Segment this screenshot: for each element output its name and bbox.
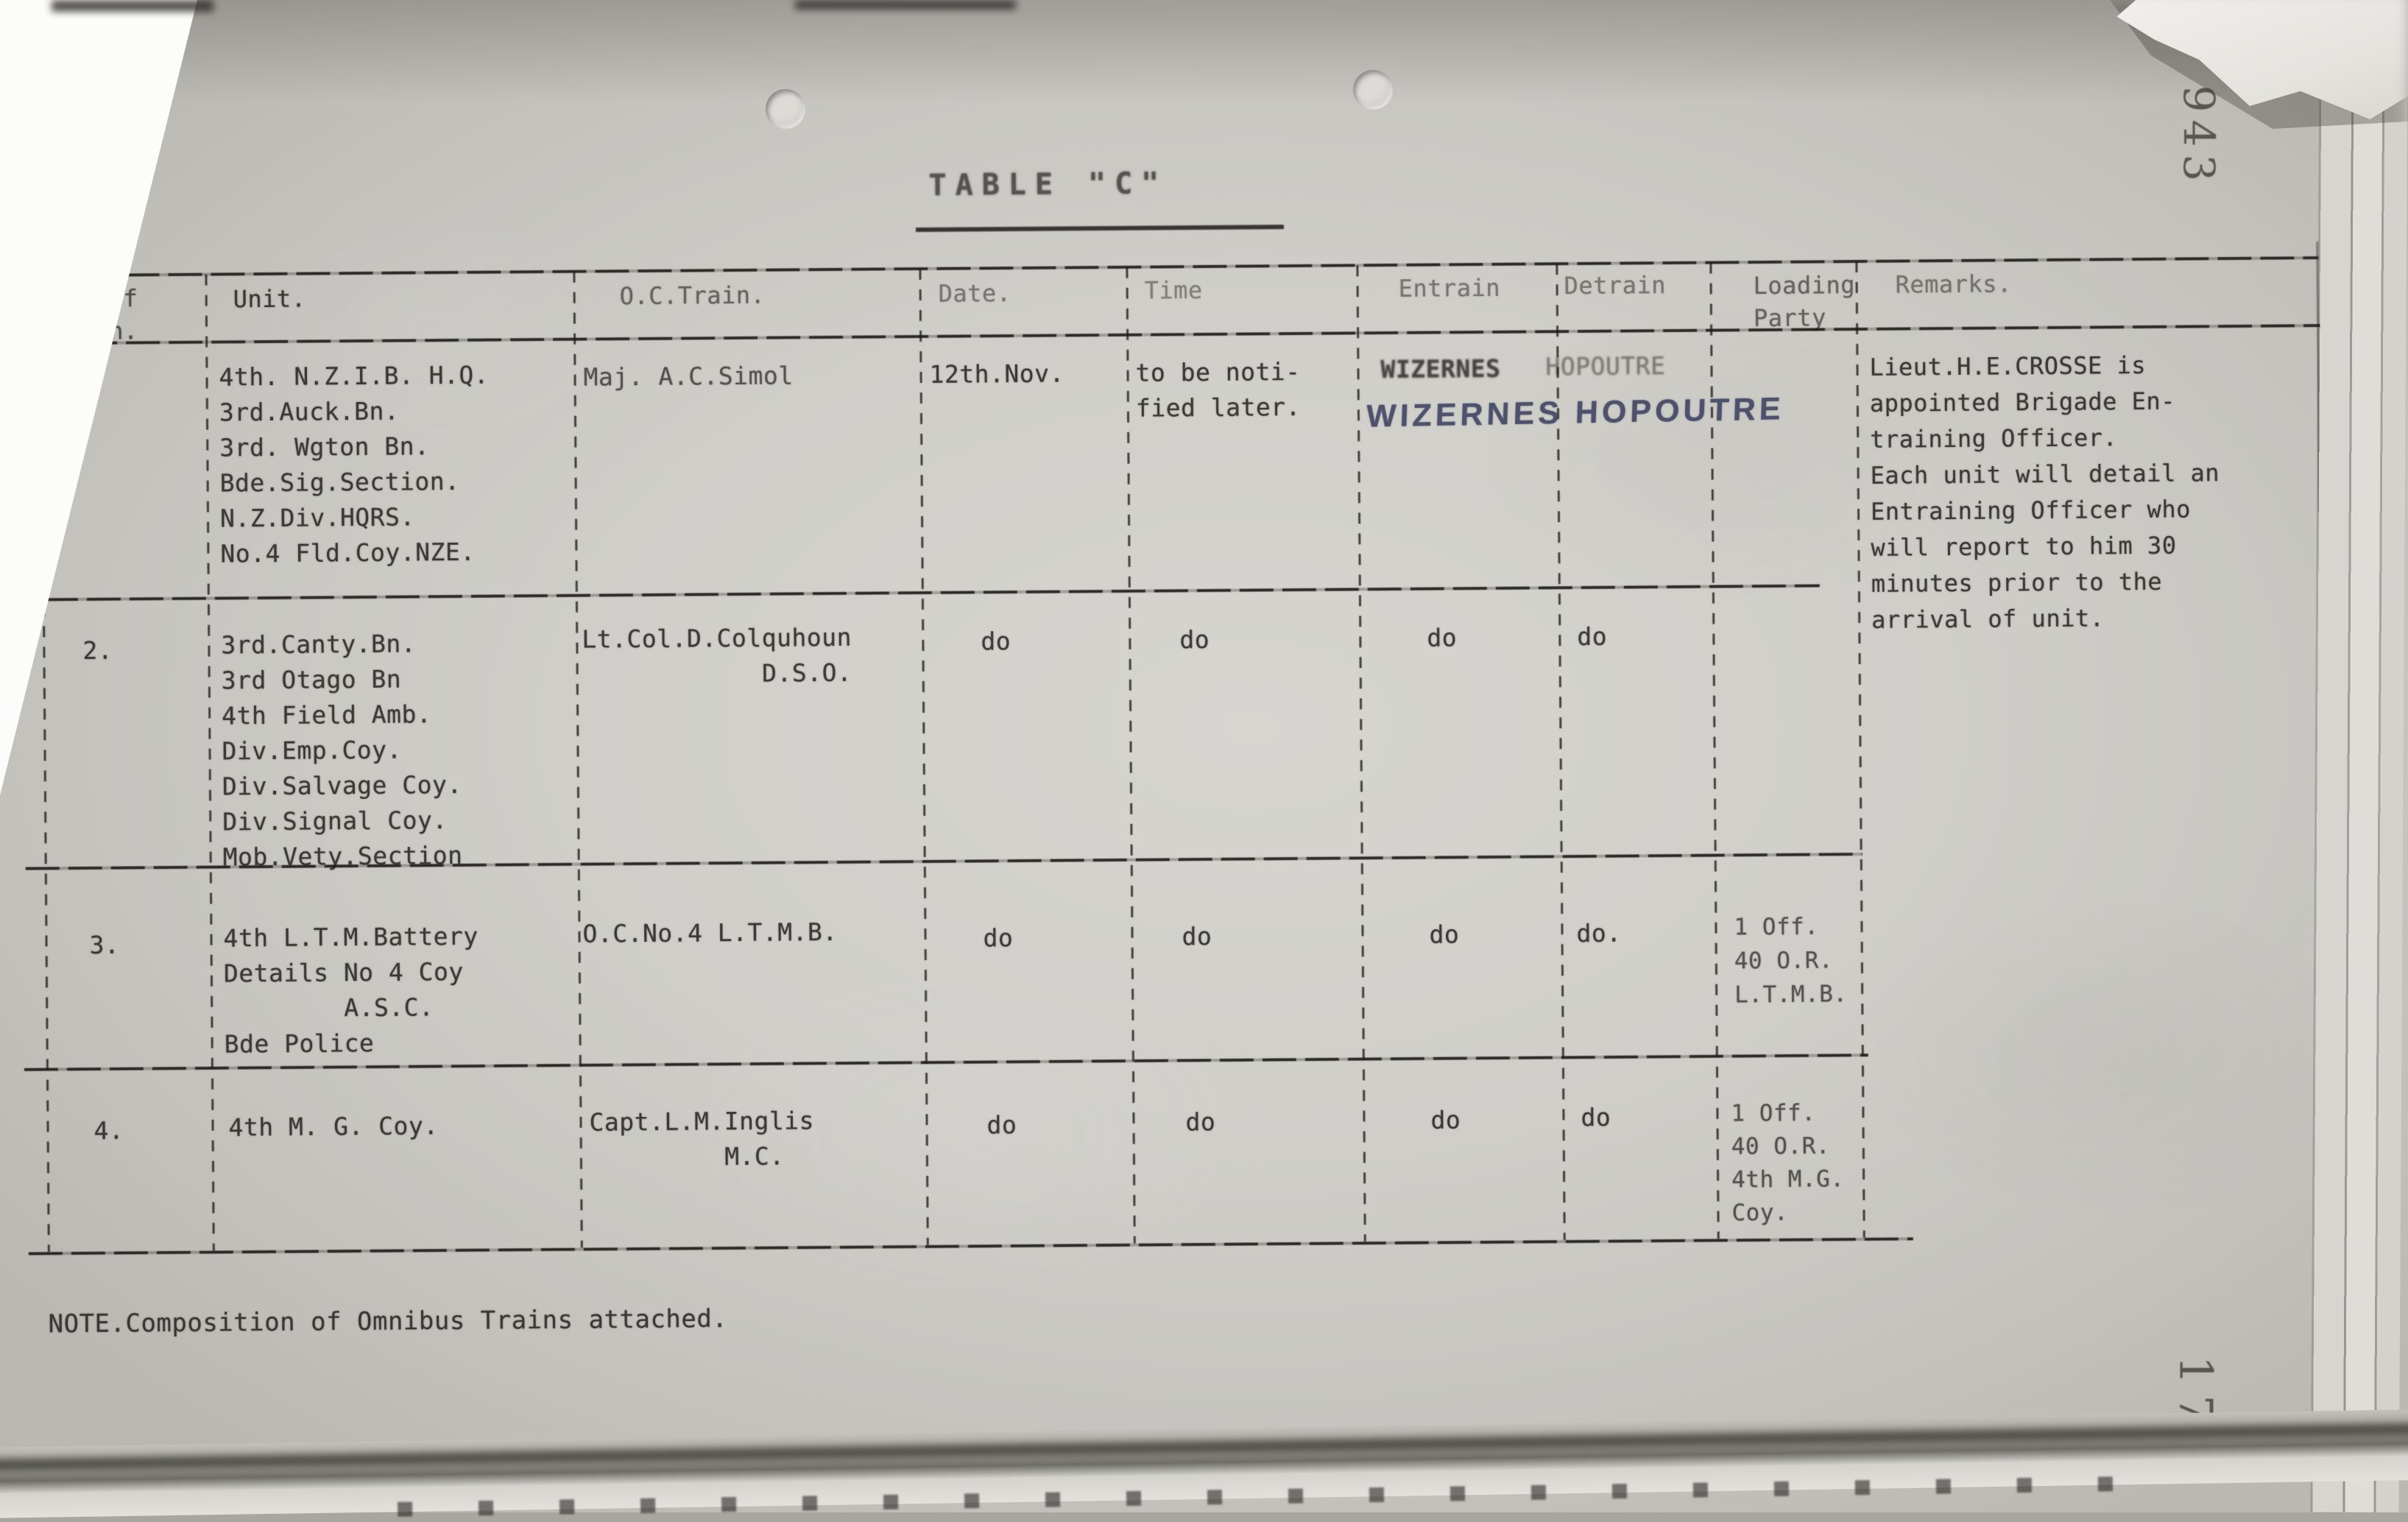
row4-entrain: do — [1430, 1102, 1461, 1138]
top-edge-shadow — [52, 0, 213, 12]
row1-bottom-rule — [44, 584, 1820, 601]
col-header-entrain: Entrain — [1398, 272, 1500, 305]
col-header-detrain: Detrain — [1564, 269, 1666, 302]
row1-handwritten-stations: WIZERNES HOPOUTRE — [1366, 390, 1853, 435]
row3-date: do — [983, 920, 1013, 956]
col-rule-unit-oc — [573, 272, 582, 1248]
row3-oc-train: O.C.No.4 L.T.M.B. — [582, 915, 838, 952]
row1-entrain-typed: WIZERNES — [1380, 351, 1500, 387]
row4-detrain: do — [1581, 1100, 1611, 1135]
row1-detrain-typed: HOPOUTRE — [1545, 348, 1665, 384]
row4-time: do — [1185, 1104, 1215, 1140]
row3-detrain: do. — [1576, 916, 1621, 951]
col-header-oc: O.C.Train. — [620, 279, 766, 313]
row3-entrain: do — [1429, 917, 1459, 952]
row2-time: do — [1179, 622, 1210, 658]
row4-date: do — [986, 1107, 1017, 1143]
col-header-date: Date. — [938, 277, 1011, 310]
row2-date: do — [981, 624, 1011, 659]
page-title: TABLE "C" — [915, 161, 1284, 232]
row2-unit-cell: 3rd.Canty.Bn. 3rd Otago Bn 4th Field Amb… — [221, 625, 569, 875]
row4-unit-cell: 4th M. G. Coy. — [228, 1108, 439, 1145]
page-title-text: TABLE "C" — [928, 166, 1168, 202]
typed-page-content: TABLE "C" No. of Train. Unit. O.C.Train.… — [0, 0, 2408, 1522]
row1-time: to be noti- fied later. — [1135, 353, 1357, 426]
row1-unit-cell: 4th. N.Z.I.B. H.Q. 3rd.Auck.Bn. 3rd. Wgt… — [219, 357, 566, 572]
punch-hole-right — [1353, 70, 1393, 110]
col-header-remarks: Remarks. — [1895, 267, 2011, 300]
row3-time: do — [1182, 919, 1212, 954]
row2-entrain: do — [1427, 620, 1457, 655]
row3-unit-cell: 4th L.T.M.Battery Details No 4 Coy A.S.C… — [223, 918, 577, 1063]
top-edge-shadow — [795, 0, 1016, 10]
footnote: NOTE.Composition of Omnibus Trains attac… — [48, 1301, 727, 1342]
col-header-time: Time — [1144, 274, 1202, 307]
col-rule-time-entrain — [1356, 265, 1366, 1241]
row3-loading-party: 1 Off. 40 O.R. L.T.M.B. — [1734, 909, 1867, 1012]
row2-detrain: do — [1577, 619, 1607, 655]
row4-oc-train: Capt.L.M.Inglis M.C. — [589, 1102, 936, 1176]
col-rule-date-time — [1126, 267, 1135, 1244]
header-bottom-rule — [40, 324, 2323, 345]
col-rule-no-unit — [205, 275, 214, 1251]
col-header-loading: Loading Party — [1753, 269, 1855, 334]
row4-loading-party: 1 Off. 40 O.R. 4th M.G. Coy. — [1731, 1096, 1871, 1230]
stacked-pages-edge — [2310, 0, 2408, 1512]
col-rule-loading-remarks — [1855, 261, 1865, 1238]
col-header-unit: Unit. — [233, 283, 306, 316]
row2-train-number: 2. — [82, 633, 113, 669]
row1-remarks: Lieut.H.E.CROSSE is appointed Brigade En… — [1869, 346, 2324, 638]
row2-oc-train: Lt.Col.D.Colquhoun D.S.O. — [582, 619, 928, 693]
row1-oc-train: Maj. A.C.Simol — [583, 358, 794, 395]
scanned-document-sheet: TABLE "C" No. of Train. Unit. O.C.Train.… — [0, 0, 2408, 1512]
punch-hole-left — [766, 89, 805, 129]
col-rule-oc-date — [919, 269, 928, 1245]
row3-train-number: 3. — [89, 928, 119, 963]
row4-train-number: 4. — [93, 1113, 124, 1149]
row1-date: 12th.Nov. — [929, 356, 1064, 392]
table-bottom-rule — [29, 1237, 1913, 1255]
